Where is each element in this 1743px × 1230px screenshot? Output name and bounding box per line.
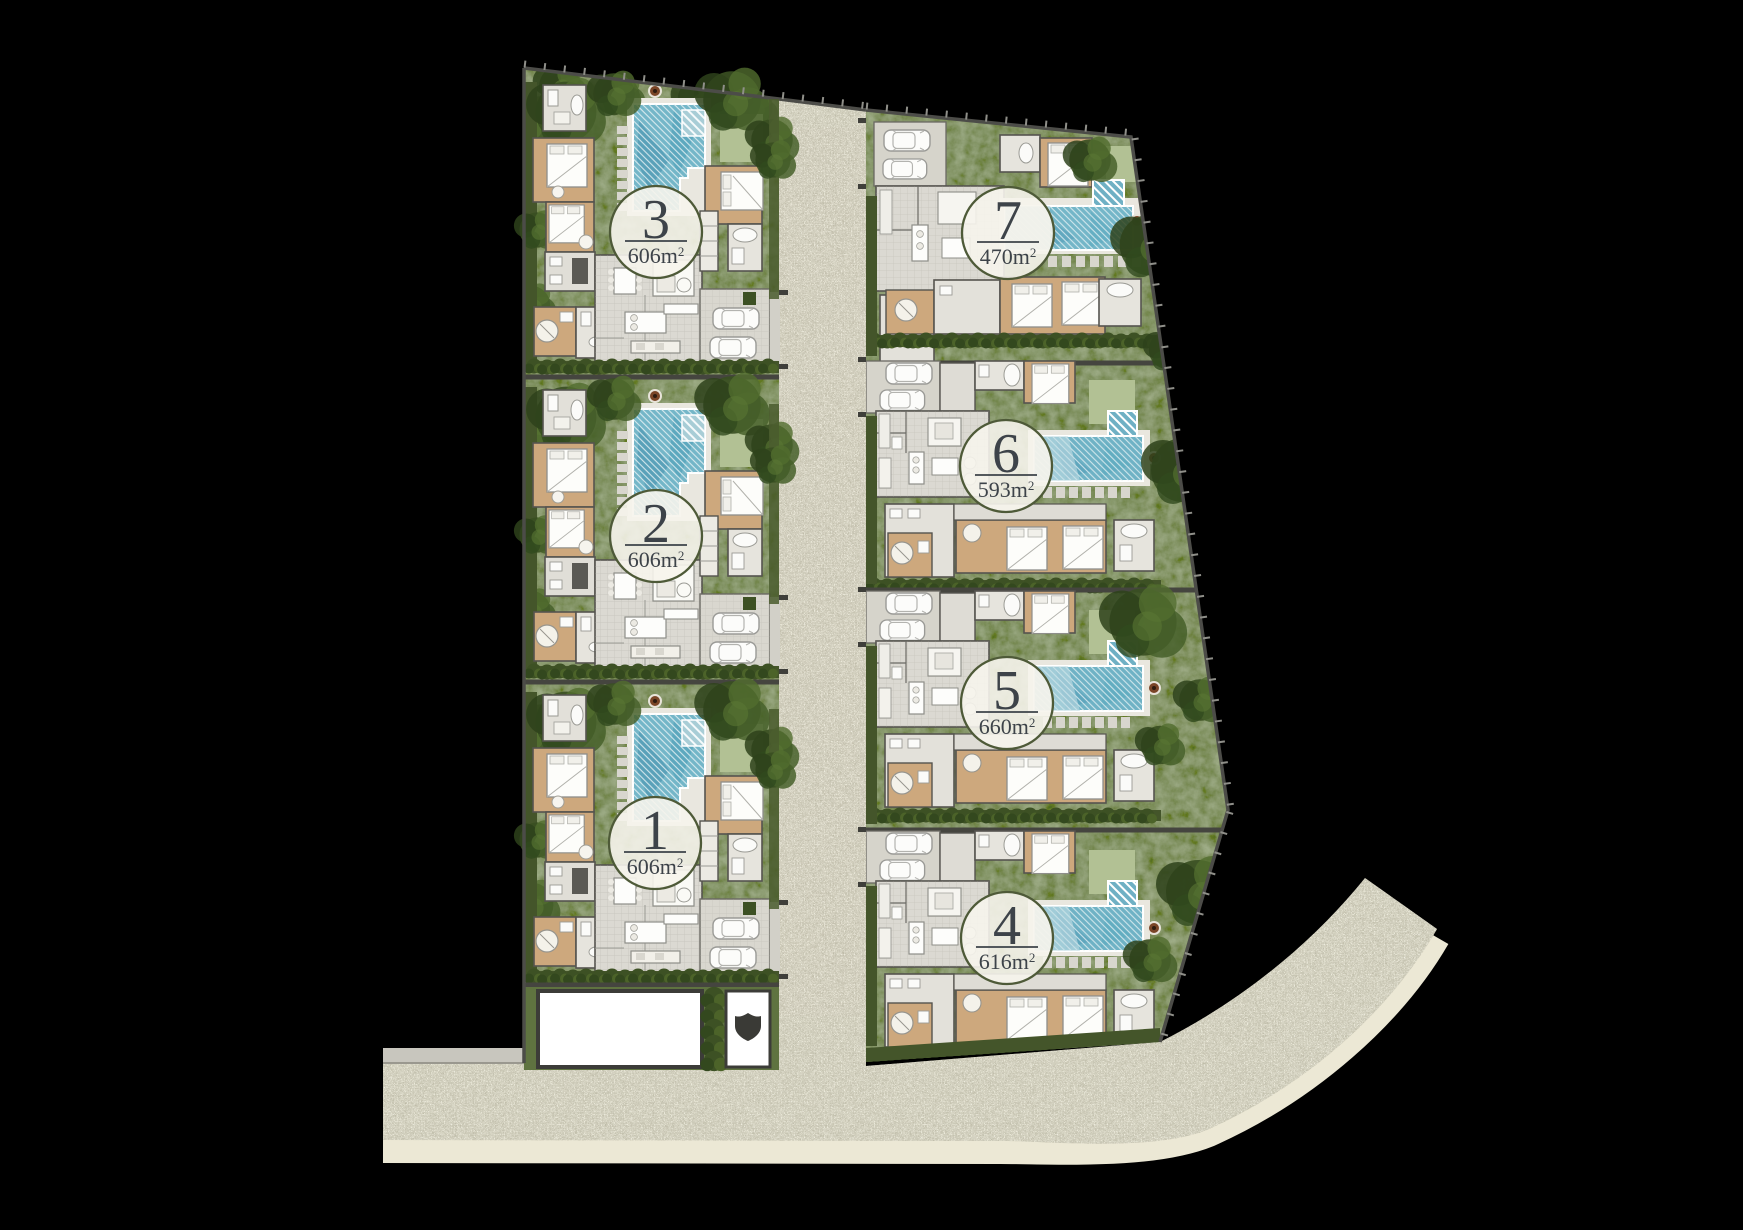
svg-text:606m2: 606m2 (628, 547, 685, 572)
svg-text:660m2: 660m2 (979, 714, 1036, 739)
svg-text:593m2: 593m2 (978, 477, 1035, 502)
svg-text:616m2: 616m2 (979, 949, 1036, 974)
svg-text:470m2: 470m2 (980, 244, 1037, 269)
svg-text:606m2: 606m2 (627, 854, 684, 879)
svg-text:606m2: 606m2 (628, 243, 685, 268)
